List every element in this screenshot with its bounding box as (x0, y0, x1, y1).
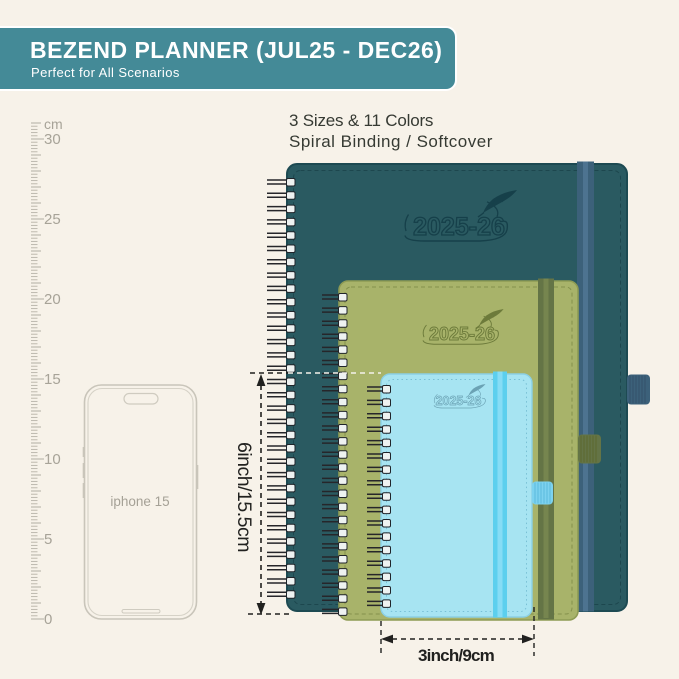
svg-text:2025-26: 2025-26 (413, 213, 505, 241)
svg-text:15: 15 (44, 371, 61, 388)
svg-text:10: 10 (44, 451, 61, 468)
svg-text:2025-26: 2025-26 (436, 394, 482, 408)
svg-text:2025-26: 2025-26 (429, 324, 495, 344)
svg-text:20: 20 (44, 291, 61, 308)
svg-text:30: 30 (44, 131, 61, 148)
svg-text:cm: cm (44, 116, 63, 132)
svg-text:25: 25 (44, 211, 61, 228)
svg-text:0: 0 (44, 611, 52, 628)
svg-text:iphone 15: iphone 15 (110, 494, 169, 509)
svg-text:5: 5 (44, 531, 52, 548)
svg-text:6inch/15.5cm: 6inch/15.5cm (233, 442, 255, 552)
svg-text:3inch/9cm: 3inch/9cm (418, 646, 495, 665)
